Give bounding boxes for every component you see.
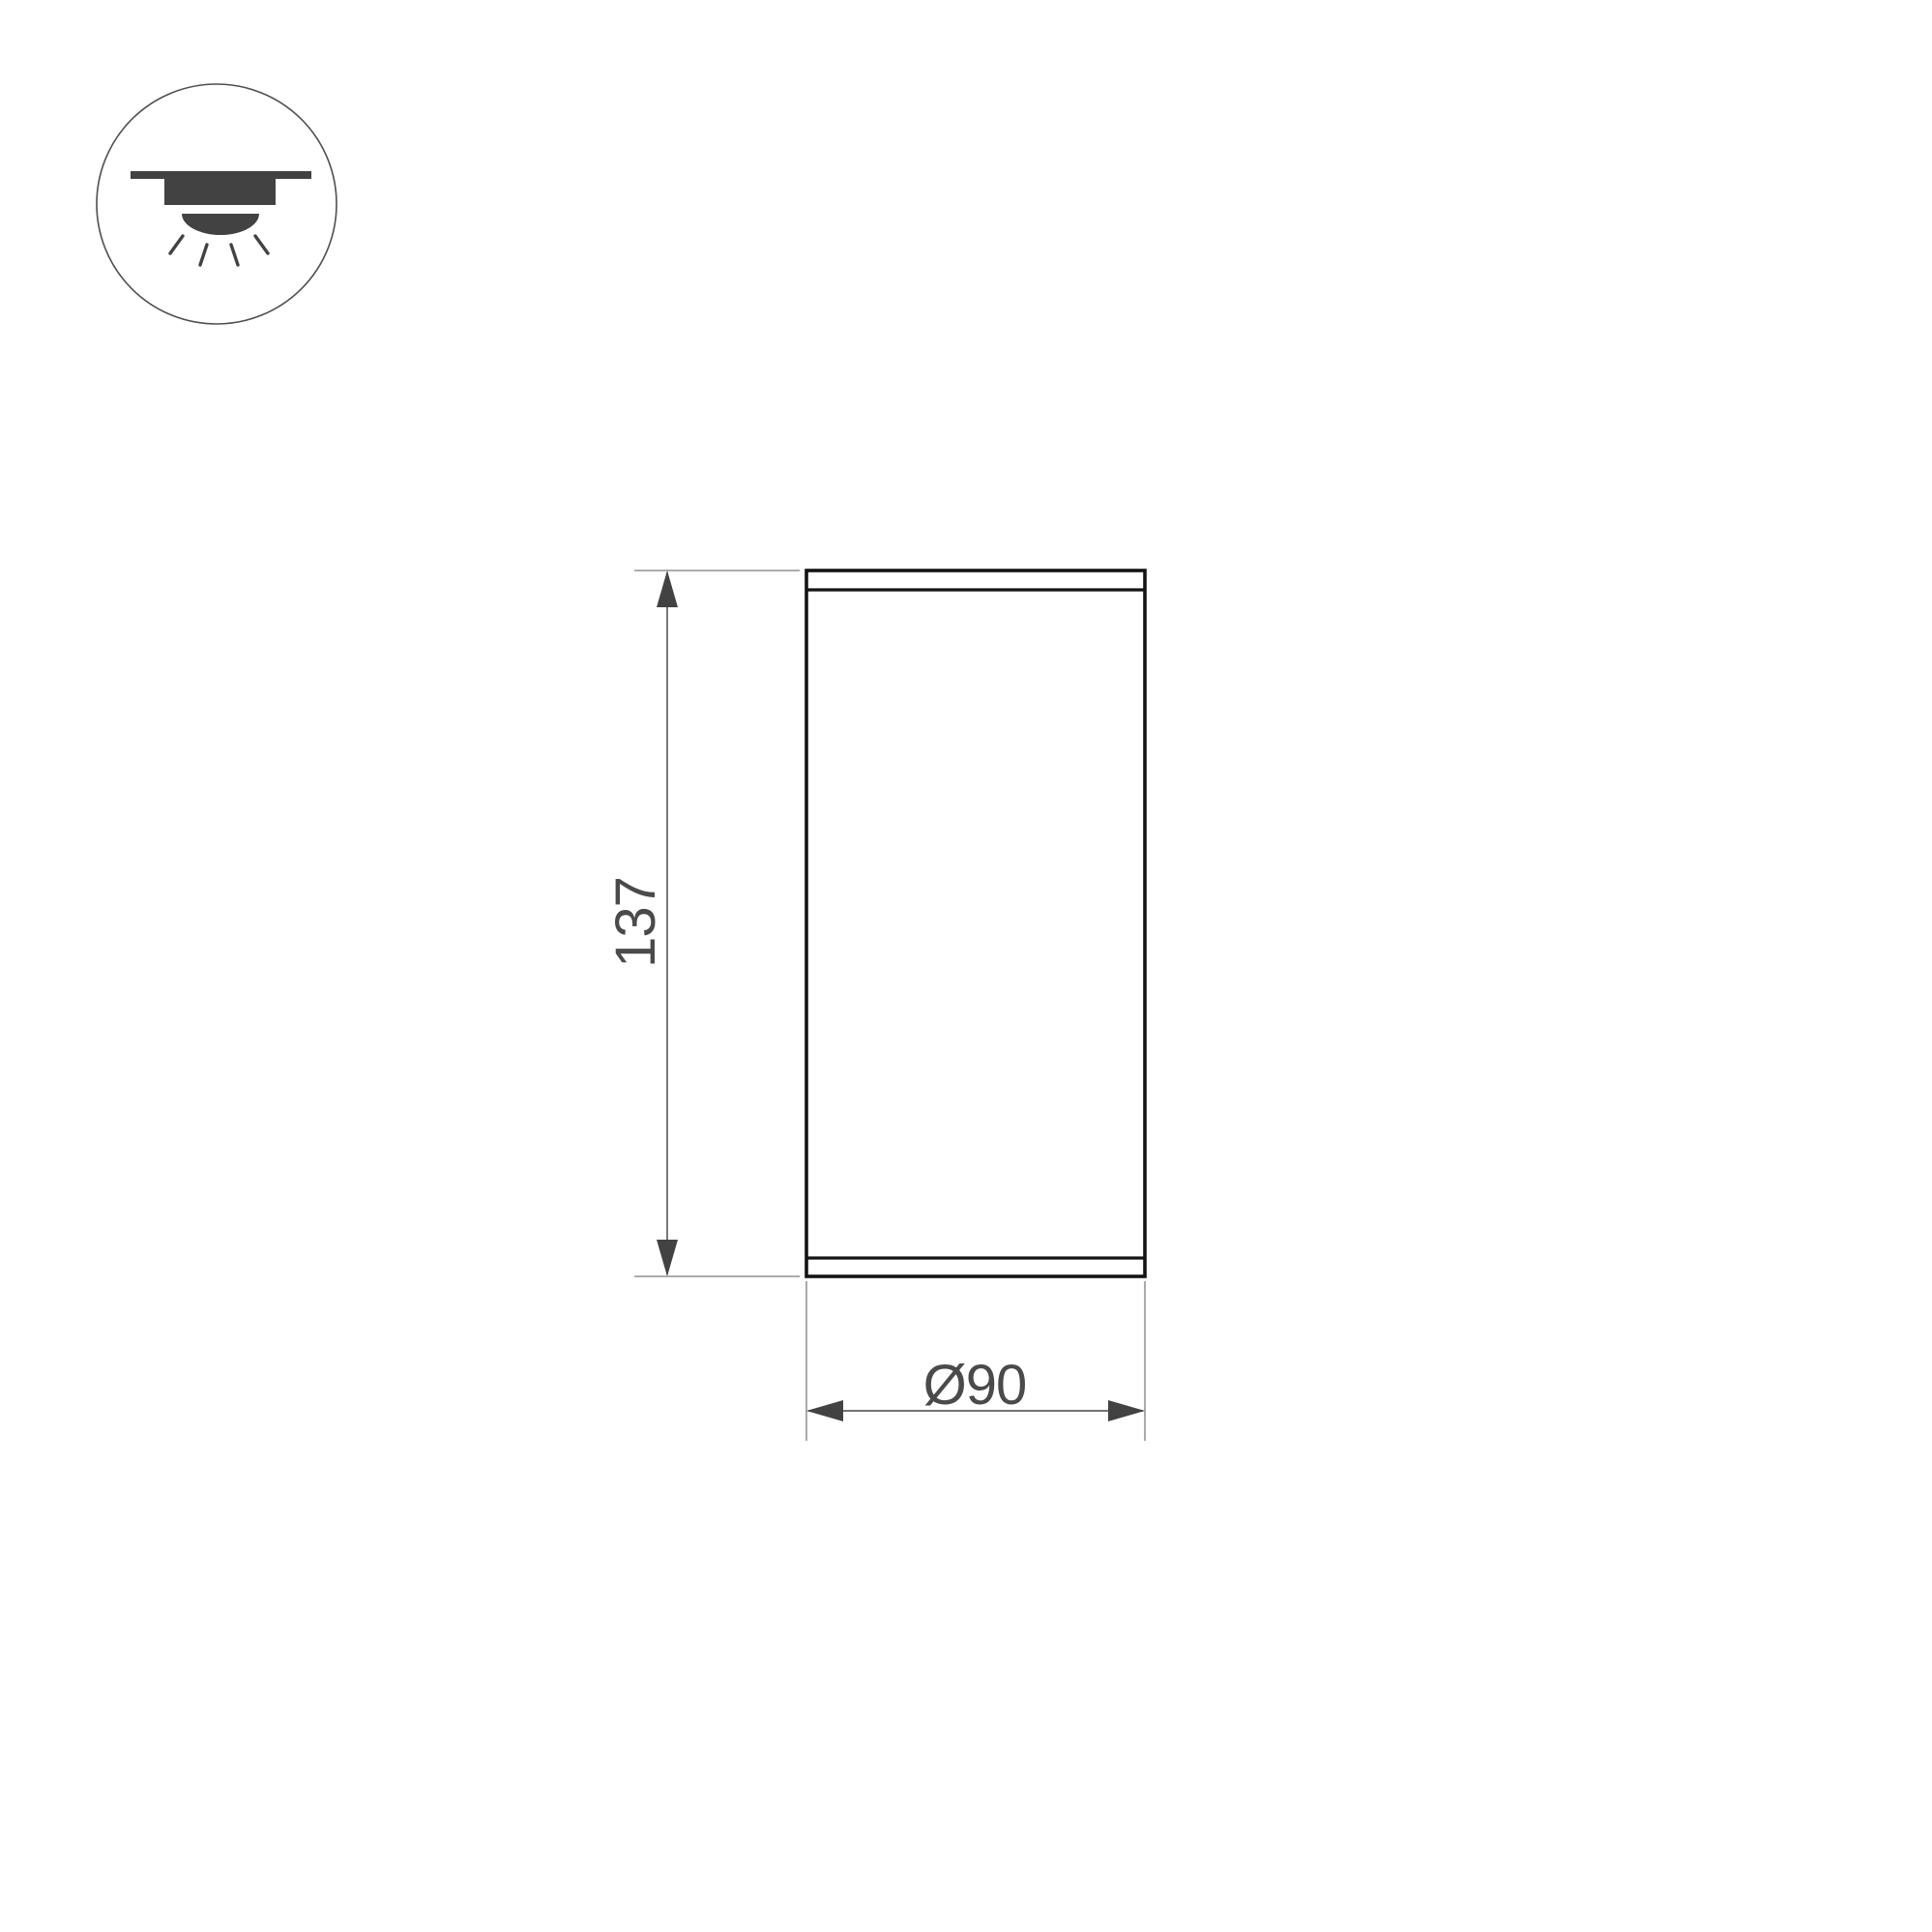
arrow-up-icon [657, 571, 678, 607]
diameter-dimension: Ø90 [806, 1281, 1145, 1441]
technical-drawing-page: 137 Ø90 [0, 0, 1932, 1932]
icon-fixture-body [164, 178, 276, 205]
diameter-dimension-value: Ø90 [923, 1354, 1027, 1417]
fixture-front-view [806, 571, 1145, 1276]
icon-ceiling-line [131, 171, 311, 179]
technical-drawing: 137 Ø90 [0, 0, 1932, 1932]
fixture-outline [806, 571, 1145, 1276]
arrow-down-icon [657, 1240, 678, 1276]
height-dimension-value: 137 [604, 877, 667, 968]
surface-mounted-downlight-icon [97, 84, 337, 324]
arrow-right-icon [1108, 1400, 1145, 1421]
height-dimension: 137 [604, 571, 800, 1276]
arrow-left-icon [806, 1400, 843, 1421]
